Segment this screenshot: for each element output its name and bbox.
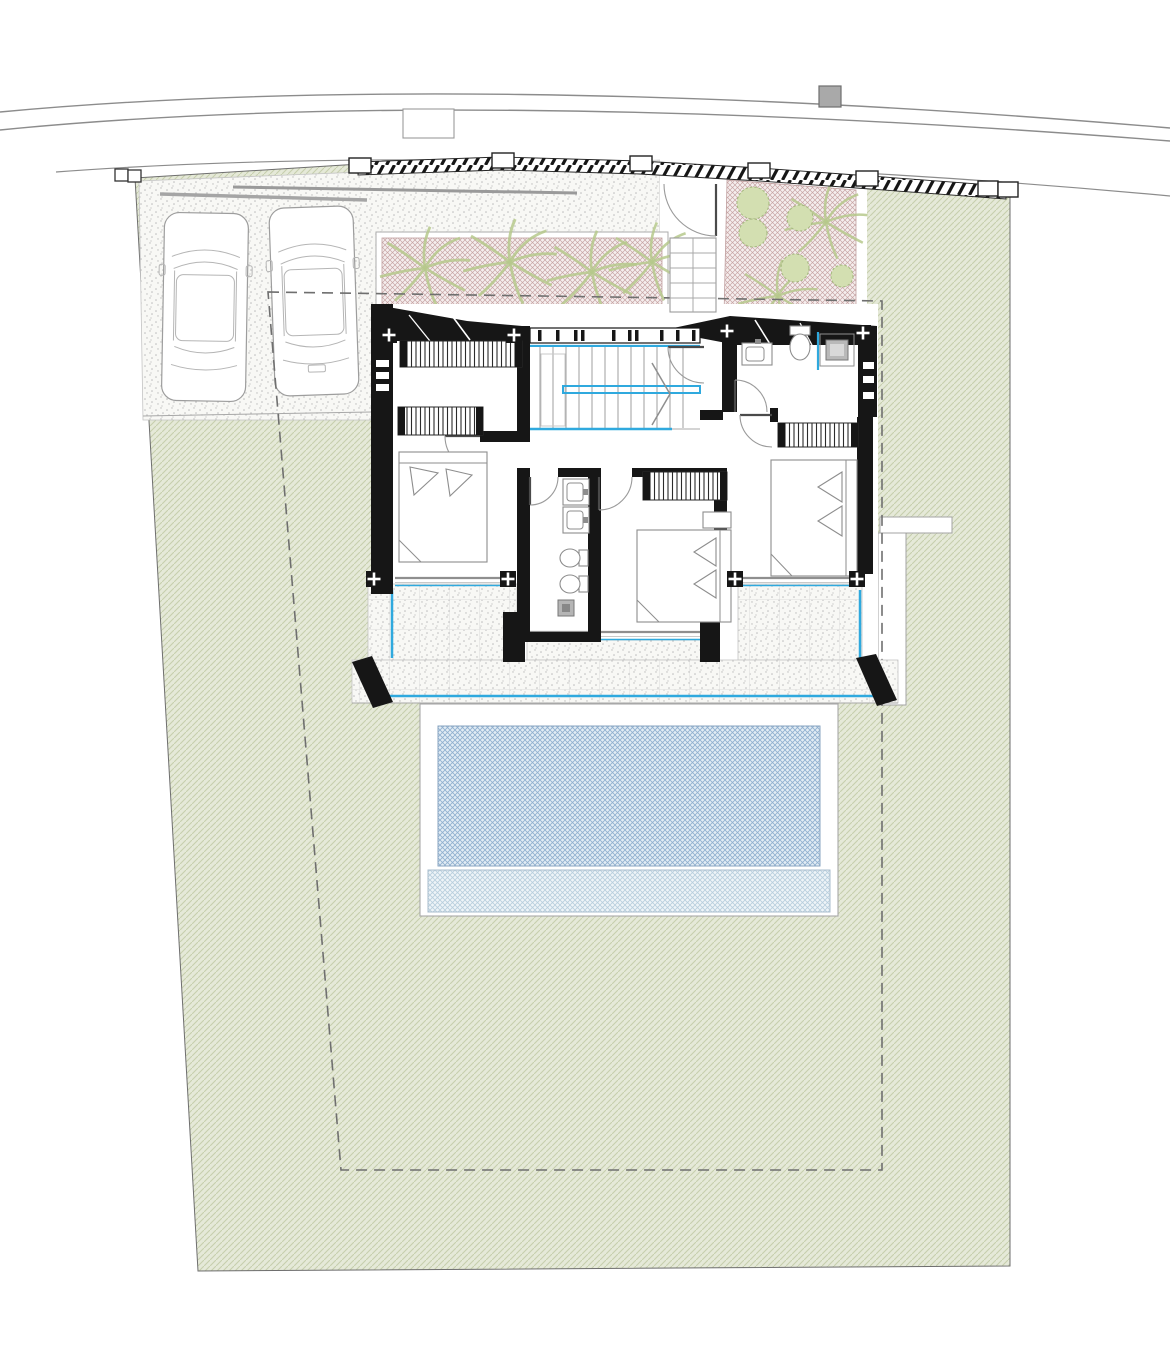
bush-icon xyxy=(737,187,769,219)
pool-water xyxy=(438,726,820,866)
bed-left xyxy=(399,452,487,562)
planter-strip xyxy=(376,219,695,314)
wall-post xyxy=(856,171,878,186)
floor-plan-svg xyxy=(0,0,1170,1365)
gate-post xyxy=(128,170,141,182)
pool-area xyxy=(420,704,838,916)
bush-icon xyxy=(781,254,809,282)
garden-wall xyxy=(880,517,952,533)
bidet xyxy=(560,575,580,593)
car-2 xyxy=(264,205,364,396)
bush-icon xyxy=(739,219,767,247)
wall-post xyxy=(630,156,652,171)
wall-east-lower xyxy=(857,417,873,574)
wall-post xyxy=(748,163,770,178)
bush-icon xyxy=(787,205,813,231)
wall-post xyxy=(349,158,371,173)
wall-bedroom1-north xyxy=(480,431,523,442)
pier-stub-left xyxy=(503,612,525,662)
wall-post xyxy=(978,181,998,196)
floor-plan-canvas xyxy=(0,0,1170,1365)
wall-west xyxy=(371,304,393,594)
car-1 xyxy=(157,212,253,402)
clerestory-window xyxy=(530,328,700,346)
bush-icon xyxy=(831,265,853,287)
side-table xyxy=(703,512,731,528)
pool-shallow-shelf xyxy=(428,870,830,912)
wall-post xyxy=(998,182,1018,197)
toilet xyxy=(790,334,810,360)
entry-steps xyxy=(670,238,716,312)
wall-post xyxy=(492,153,514,168)
wall-bath-north xyxy=(558,468,601,477)
bed-right xyxy=(771,460,857,576)
road-manhole xyxy=(403,109,454,138)
utility-box xyxy=(819,86,841,107)
toilet xyxy=(560,549,580,567)
wall-bath-south xyxy=(517,632,601,642)
stair xyxy=(530,347,700,429)
gate-post xyxy=(115,169,128,181)
